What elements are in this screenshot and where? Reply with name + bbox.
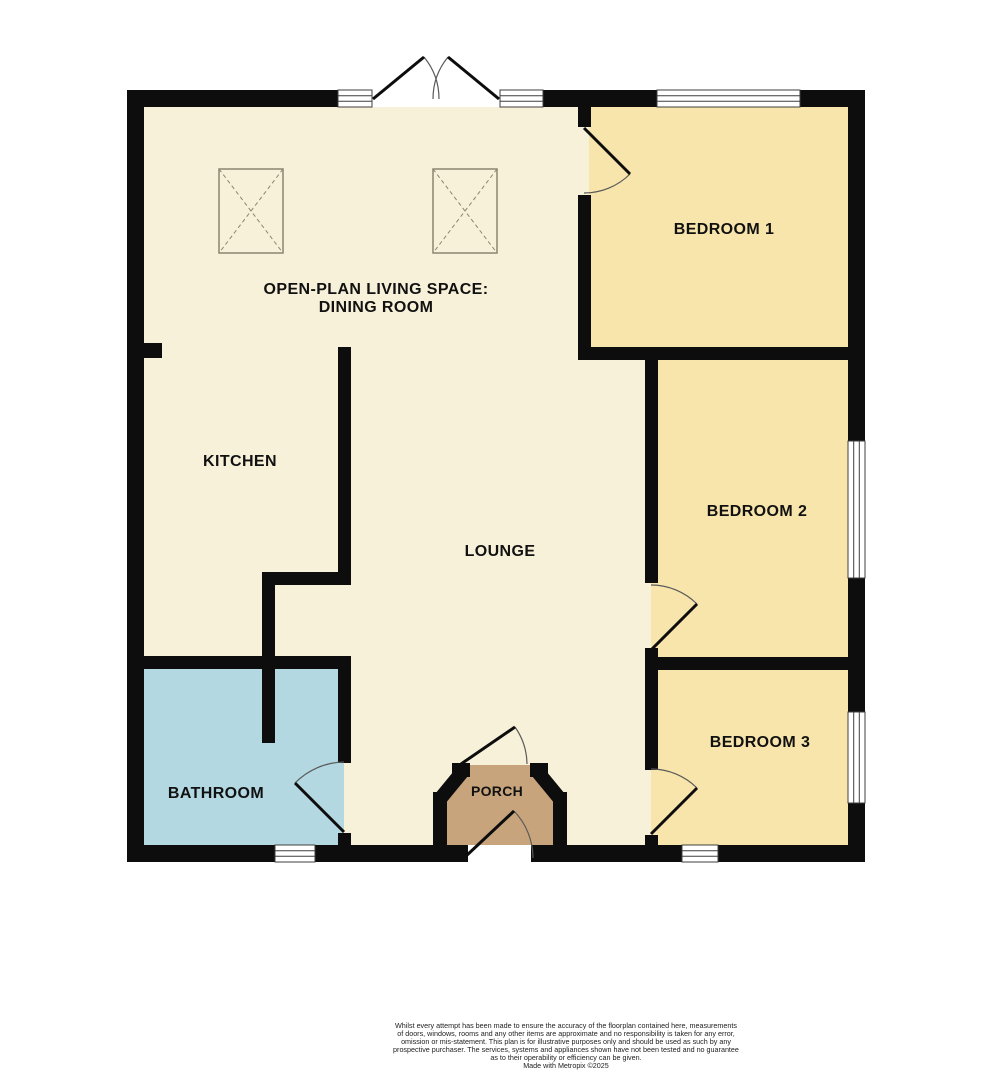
- room-label-living-line1: OPEN-PLAN LIVING SPACE:: [264, 281, 489, 298]
- wall-segment: [645, 657, 865, 670]
- floorplan-page: OPEN-PLAN LIVING SPACE: DINING ROOM KITC…: [0, 0, 992, 1080]
- wall-segment: [262, 669, 275, 743]
- wall-segment: [127, 90, 144, 862]
- room-label-living-line2: DINING ROOM: [319, 299, 434, 316]
- room-label-bedroom1: BEDROOM 1: [674, 221, 775, 238]
- french-door-opening: [372, 90, 500, 107]
- window-top-left: [338, 90, 372, 107]
- window-bathroom: [275, 845, 315, 862]
- credit: Made with Metropix ©2025: [371, 1062, 761, 1070]
- window-bedroom2: [848, 441, 865, 578]
- floorplan-canvas: OPEN-PLAN LIVING SPACE: DINING ROOM KITC…: [0, 0, 992, 1080]
- wall-segment: [645, 835, 658, 845]
- room-bedroom3: [651, 663, 848, 845]
- wall-segment: [338, 669, 351, 763]
- wall-segment: [645, 360, 658, 583]
- window-top-right: [500, 90, 543, 107]
- room-label-porch: PORCH: [471, 783, 523, 799]
- wall-segment: [338, 347, 351, 585]
- wall-segment: [262, 572, 351, 585]
- wall-segment: [578, 107, 591, 127]
- room-label-kitchen: KITCHEN: [203, 453, 277, 470]
- porch-door-opening: [468, 845, 531, 862]
- wall-segment: [578, 347, 865, 360]
- room-label-bedroom2: BEDROOM 2: [707, 503, 808, 520]
- wall-segment: [645, 670, 658, 770]
- room-label-lounge: LOUNGE: [465, 543, 536, 560]
- window-bedroom1: [657, 90, 800, 107]
- room-bathroom: [144, 663, 344, 845]
- wall-segment: [578, 195, 591, 360]
- disclaimer: Whilst every attempt has been made to en…: [371, 1022, 761, 1071]
- room-label-bathroom: BATHROOM: [168, 785, 264, 802]
- room-label-bedroom3: BEDROOM 3: [710, 734, 811, 751]
- wall-segment: [338, 833, 351, 845]
- wall-segment: [144, 343, 162, 358]
- wall-segment: [144, 656, 351, 669]
- window-bedroom3-bottom: [682, 845, 718, 862]
- window-bedroom3-side: [848, 712, 865, 803]
